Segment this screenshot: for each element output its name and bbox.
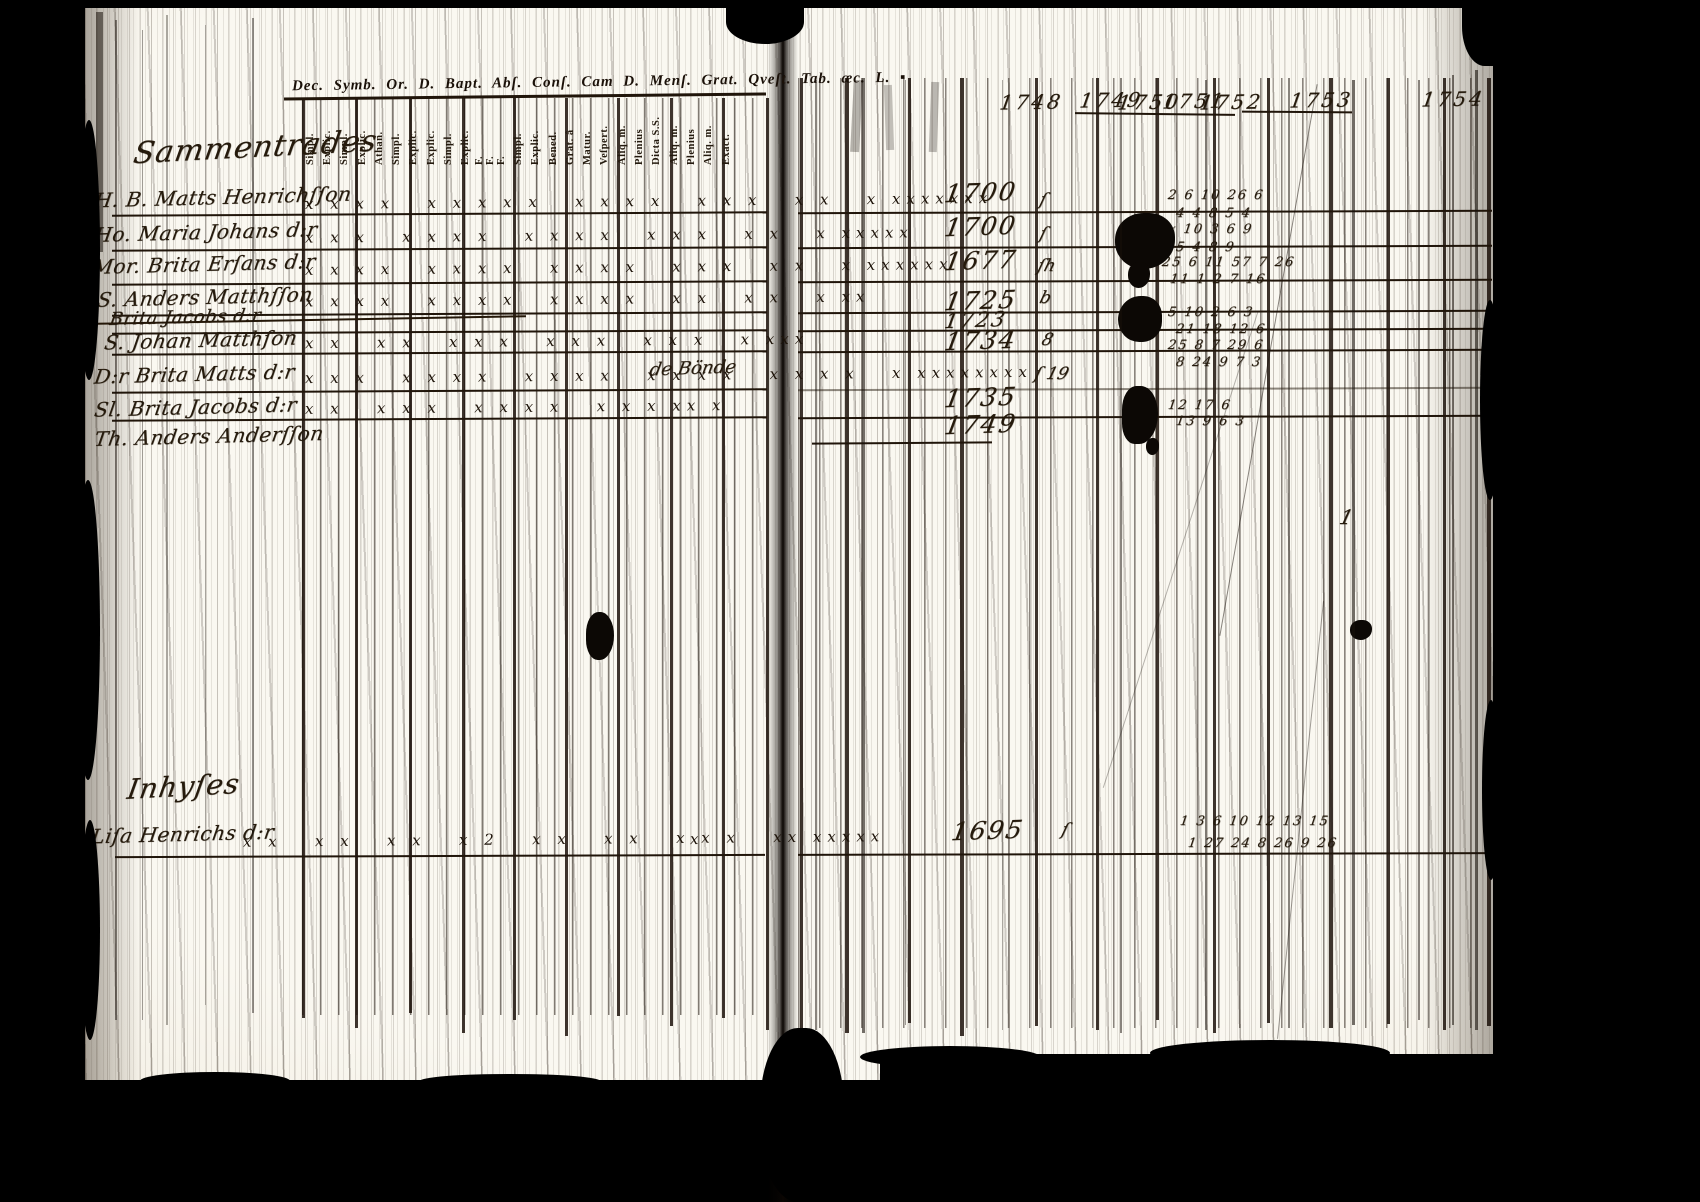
entry-numbers-upper: x 10 3 6 9 bbox=[1167, 222, 1254, 237]
column-rule bbox=[1267, 78, 1270, 1023]
column-label: Aliq. m. bbox=[670, 101, 681, 165]
column-label: Grat. â bbox=[566, 101, 577, 165]
column-label: Simpl. bbox=[444, 101, 455, 165]
column-label: Matur. bbox=[583, 101, 594, 165]
scan-streak bbox=[1288, 78, 1290, 1028]
entry-year: 1700 bbox=[942, 211, 1019, 242]
column-rule bbox=[1035, 78, 1038, 1026]
column-rule bbox=[1096, 78, 1099, 1030]
spine-bottom-blob bbox=[760, 1028, 844, 1202]
entry-numbers-lower: 13 9 6 3 bbox=[1175, 414, 1247, 429]
attendance-marks: x x x x x x x x x x x x xx x bbox=[305, 396, 727, 418]
spine-mark: ſ 19 bbox=[1032, 364, 1071, 384]
entry-year: 1734 bbox=[942, 325, 1019, 356]
entry-numbers-upper: 1 3 6 10 12 13 15 bbox=[1179, 814, 1331, 829]
column-label: Aliq. m. bbox=[704, 101, 715, 165]
entry-name: S. Johan Matthſon bbox=[103, 325, 299, 354]
entry-numbers-upper: 2 6 10 26 6 bbox=[1167, 188, 1266, 203]
entry-year: 1677 bbox=[942, 245, 1019, 276]
scan-streak bbox=[905, 80, 906, 1025]
column-rule bbox=[1329, 78, 1333, 1028]
column-label: F. bbox=[497, 101, 508, 165]
column-label: Bened. bbox=[549, 101, 560, 165]
column-label: Aliq. m. bbox=[618, 101, 629, 165]
column-rule bbox=[800, 78, 803, 1028]
entry-year: 1695 bbox=[949, 815, 1026, 846]
row-annotation: de Bönde bbox=[648, 357, 738, 381]
edge-blob-right bbox=[1480, 300, 1500, 500]
book-spine bbox=[768, 0, 798, 1202]
entry-numbers-upper: 25 8 7 29 6 bbox=[1167, 338, 1266, 353]
column-label: Explic. bbox=[427, 101, 438, 165]
edge-blob-bottom bbox=[1150, 1040, 1390, 1066]
edge-blob-left bbox=[76, 480, 100, 780]
edge-blob-bottom bbox=[860, 1046, 1040, 1068]
entry-numbers-lower: 1 27 24 8 26 9 26 bbox=[1187, 836, 1339, 851]
edge-blob-left bbox=[80, 820, 100, 1040]
edge-blob-top-spine bbox=[726, 0, 804, 44]
column-label: Explic. bbox=[461, 101, 472, 165]
column-rule bbox=[845, 78, 849, 1033]
entry-numbers-upper: 12 17 6 bbox=[1167, 398, 1233, 413]
scan-streak bbox=[1120, 78, 1122, 1033]
scan-streak bbox=[252, 18, 254, 1013]
attendance-mark-stray: x bbox=[690, 830, 705, 848]
scan-streak bbox=[142, 30, 143, 1020]
scanned-register-page: { "colors": {"background": "#000000", "p… bbox=[0, 0, 1700, 1202]
column-label: Dicta S.S. bbox=[652, 101, 663, 165]
ink-blot bbox=[1118, 296, 1162, 342]
entry-numbers-upper: 5 10 2 6 3 bbox=[1167, 305, 1255, 320]
scan-streak bbox=[166, 15, 168, 1025]
scan-streak bbox=[815, 80, 817, 1030]
year-header: 1753 bbox=[1288, 87, 1355, 112]
column-label: F. bbox=[475, 101, 486, 165]
scan-streak bbox=[1352, 80, 1355, 1025]
edge-blob-bottom bbox=[420, 1074, 600, 1088]
scan-streak bbox=[1452, 75, 1454, 1025]
scan-streak bbox=[205, 25, 206, 1005]
column-label: Explic. bbox=[531, 101, 542, 165]
column-label: Simpl. bbox=[392, 101, 403, 165]
entry-year: 1700 bbox=[942, 177, 1019, 208]
year-header: 1748 bbox=[998, 89, 1065, 114]
scan-streak bbox=[115, 20, 117, 1020]
entry-numbers-upper: 25 6 11 57 7 26 bbox=[1161, 255, 1296, 270]
column-rule bbox=[1443, 78, 1446, 1030]
entry-numbers-lower: 4 4 8 5 4 bbox=[1175, 206, 1253, 221]
scan-streak bbox=[862, 78, 865, 1033]
scan-streak bbox=[1475, 70, 1478, 1030]
edge-blob-left bbox=[78, 120, 100, 380]
column-label: Plenius bbox=[635, 101, 646, 165]
column-rule bbox=[908, 78, 911, 1023]
scan-streak bbox=[1205, 80, 1207, 1030]
entry-year: 1749 bbox=[942, 409, 1019, 440]
column-rule bbox=[1387, 78, 1390, 1024]
column-label: F. bbox=[486, 101, 497, 165]
column-rule bbox=[1487, 78, 1491, 1026]
edge-blob-right bbox=[1482, 700, 1500, 880]
entry-numbers-lower: 11 1 2 7 16 bbox=[1169, 272, 1268, 287]
column-label: Veſpert. bbox=[600, 101, 611, 165]
column-label: Plenius bbox=[687, 101, 698, 165]
entry-numbers-lower: 8 24 9 7 3 bbox=[1175, 355, 1263, 370]
column-label: Simpl. bbox=[514, 101, 525, 165]
edge-blob-bottom bbox=[140, 1072, 290, 1090]
column-label: Exact. bbox=[722, 101, 733, 165]
scan-streak bbox=[1002, 80, 1003, 1030]
column-label: Explic. bbox=[409, 101, 420, 165]
scan-streak bbox=[1418, 80, 1420, 1020]
